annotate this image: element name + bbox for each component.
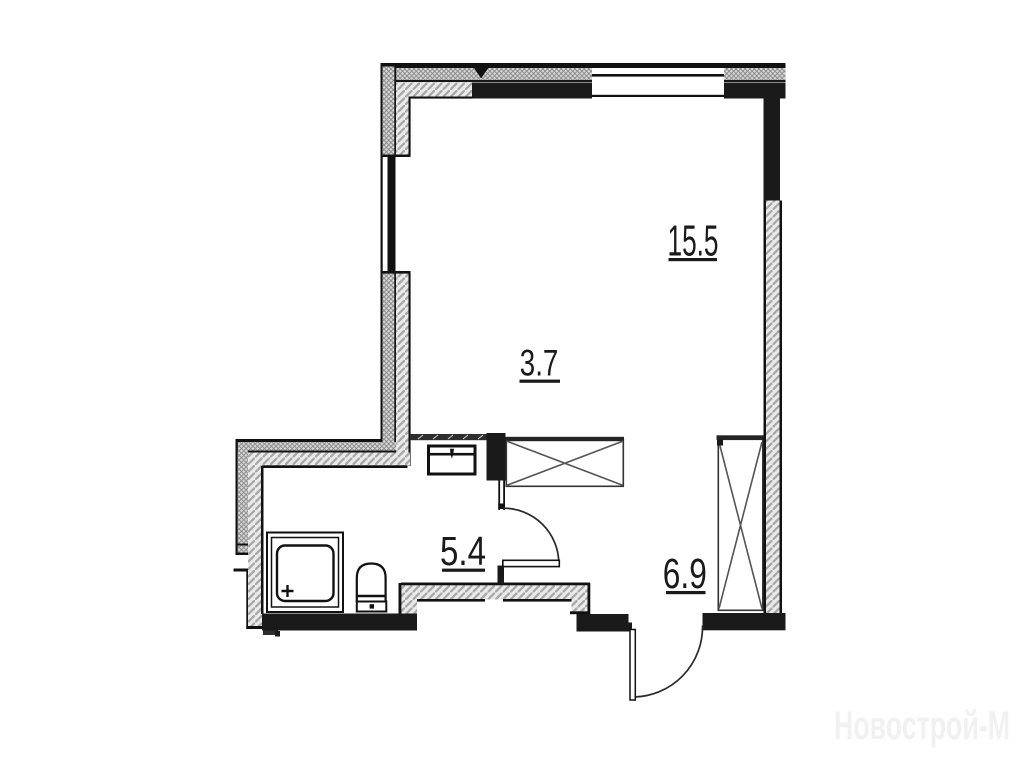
svg-text:Новострой-М: Новострой-М	[834, 704, 1010, 748]
svg-text:6.9: 6.9	[663, 550, 707, 598]
svg-text:5.4: 5.4	[440, 528, 486, 574]
svg-text:3.7: 3.7	[520, 343, 559, 384]
